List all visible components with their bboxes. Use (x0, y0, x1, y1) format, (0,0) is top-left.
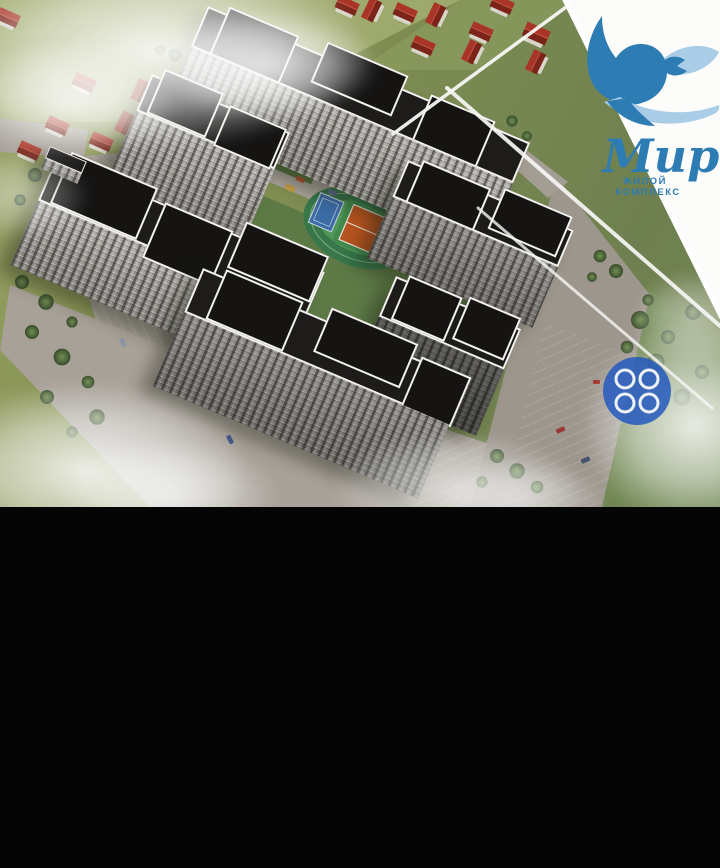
logo-subtitle-line2: КОМПЛЕКС (615, 187, 680, 198)
ad-image[interactable]: Мир ЖИЛОЙ КОМПЛЕКС (0, 0, 720, 507)
caption-band: Реклама ЖК Мир (0, 507, 720, 868)
apps-badge[interactable] (603, 357, 671, 425)
ad-screenshot: Мир ЖИЛОЙ КОМПЛЕКС Реклама ЖК Мир (0, 0, 720, 868)
logo-title: Мир (601, 129, 720, 183)
badge-circle (603, 357, 671, 425)
logo-subtitle-line1: ЖИЛОЙ (622, 175, 667, 187)
overlay-graphics: Мир ЖИЛОЙ КОМПЛЕКС (0, 0, 720, 507)
